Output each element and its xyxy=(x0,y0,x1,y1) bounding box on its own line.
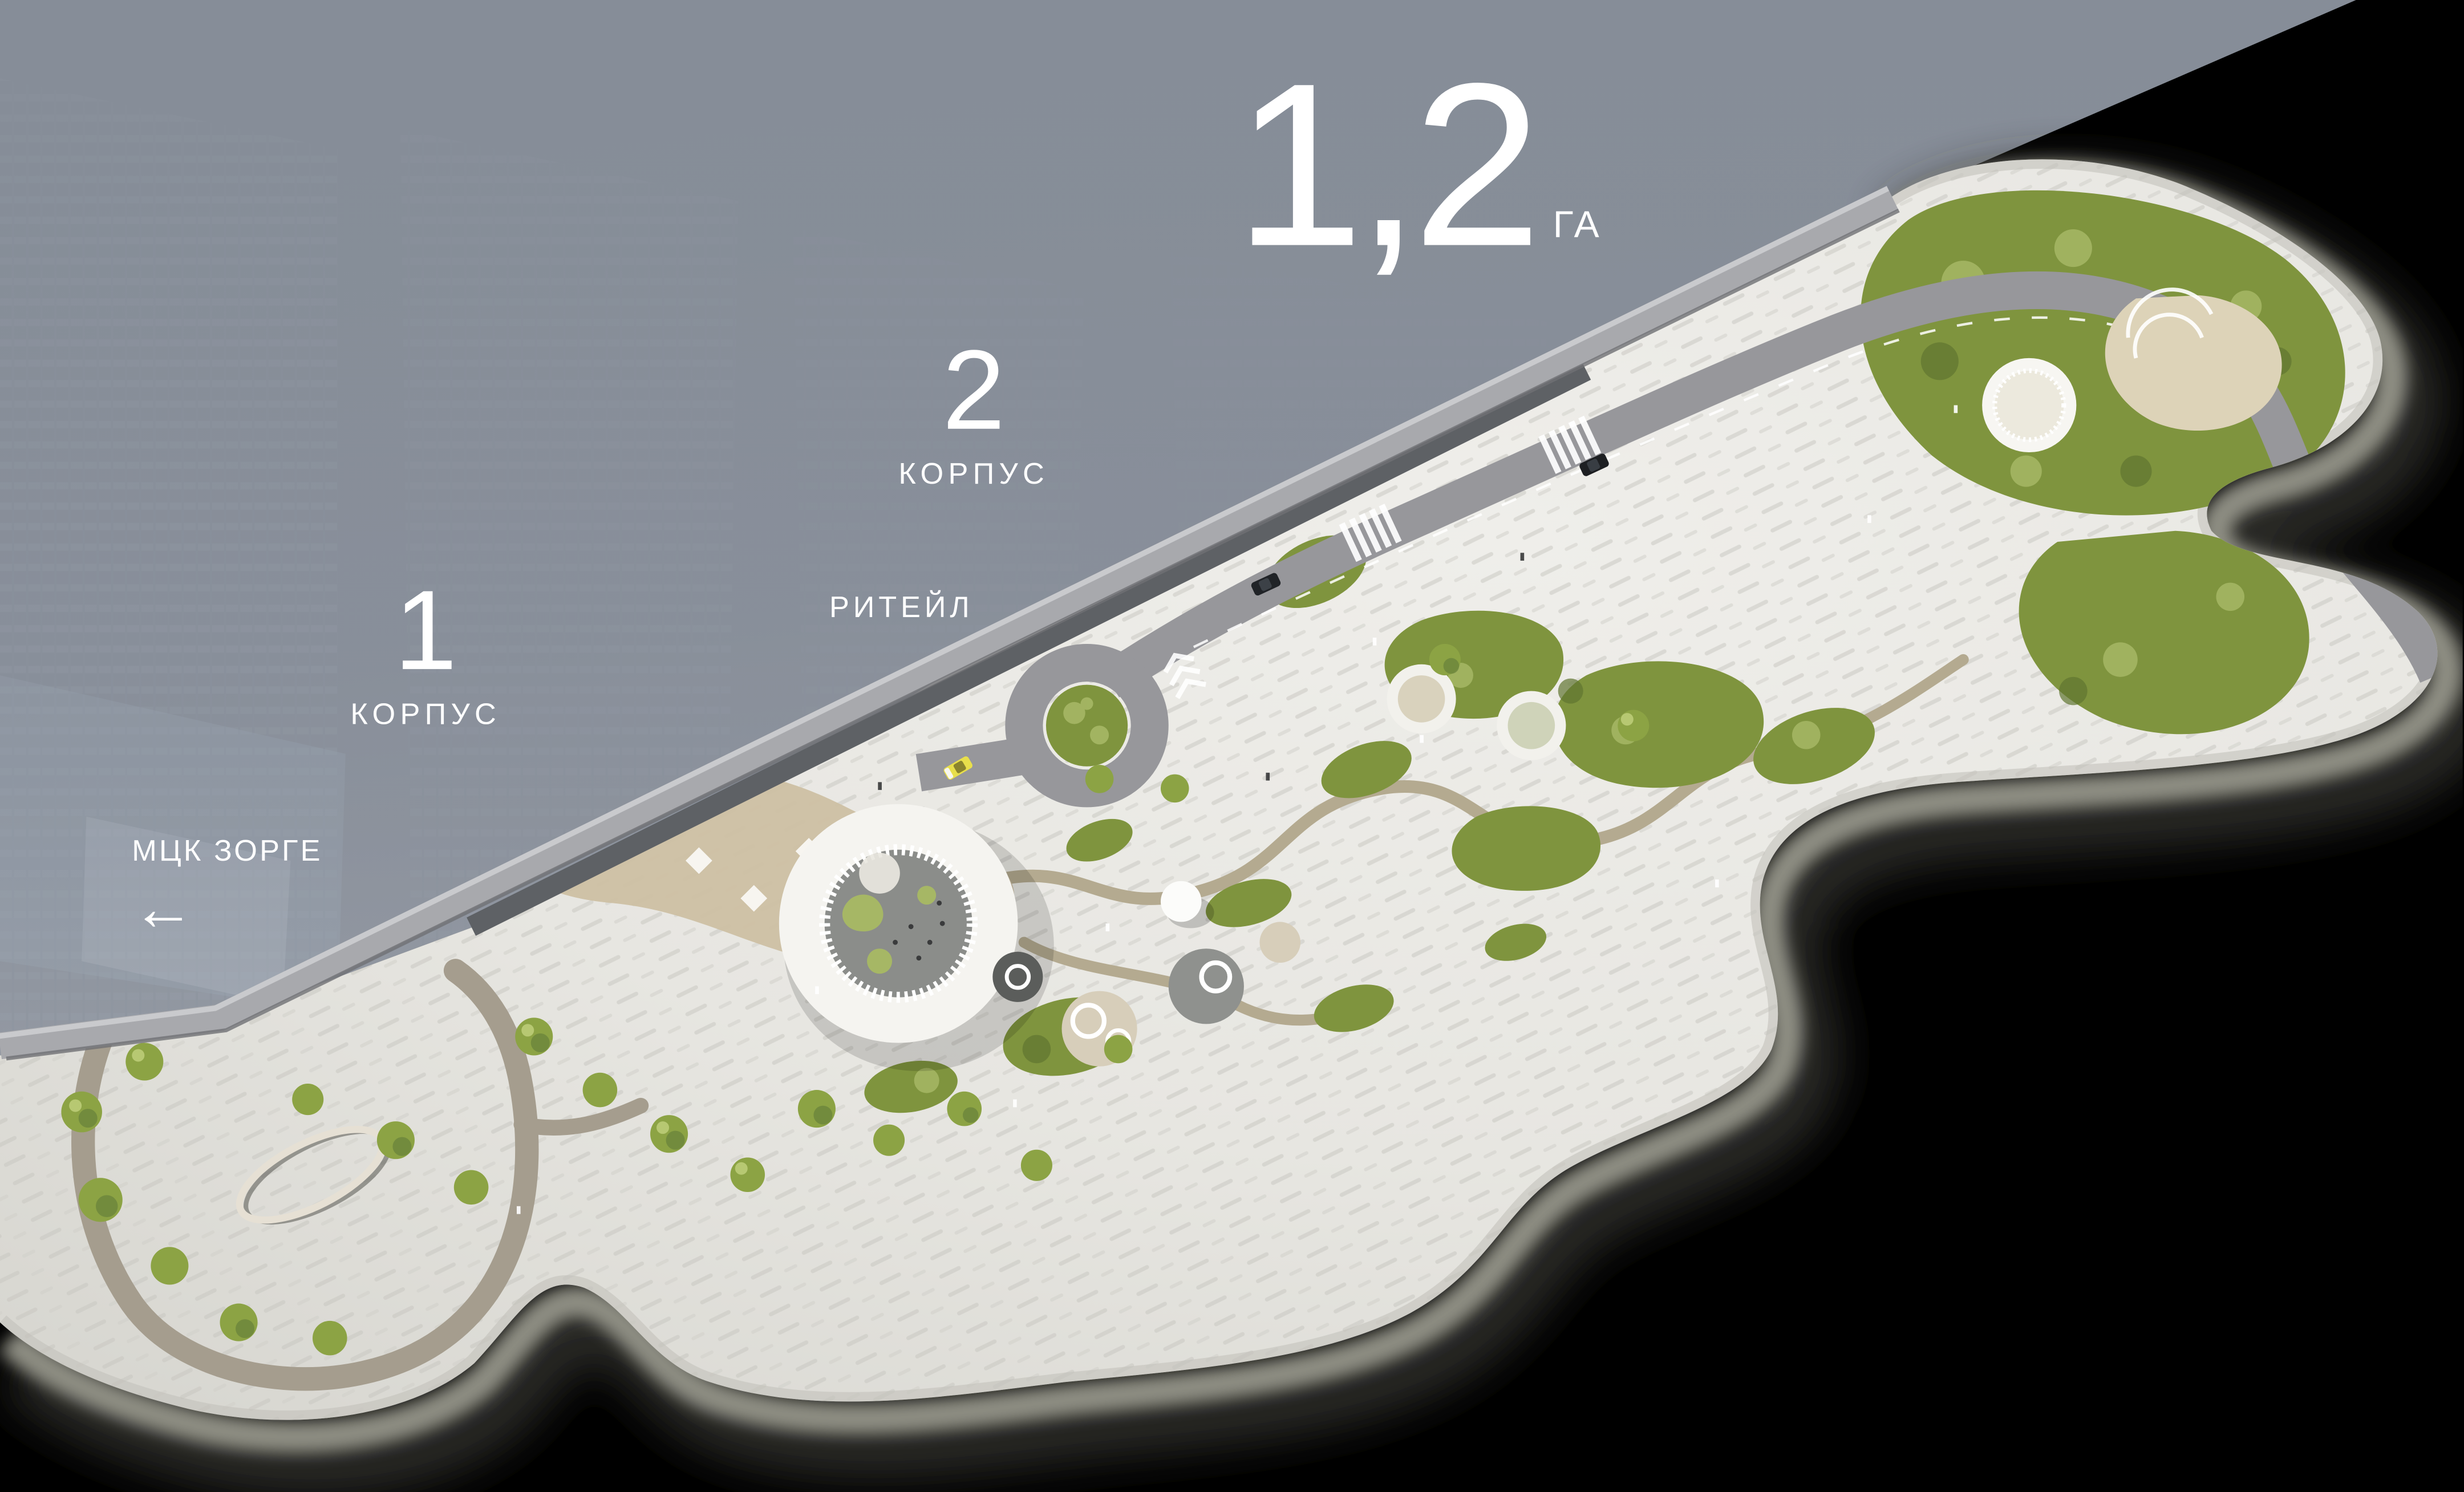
render-scene xyxy=(0,0,2463,1492)
building-2-number: 2 xyxy=(898,335,1049,448)
area-stat-value: 1,2 xyxy=(1234,60,1534,274)
area-stat-unit: ГА xyxy=(1553,204,1602,248)
building-1-label: КОРПУС xyxy=(350,699,501,733)
masterplan-stage: 1,2 ГА 2 КОРПУС 1 КОРПУС РИТЕЙЛ МЦК ЗОРГ… xyxy=(0,0,2463,1492)
building-1-number: 1 xyxy=(350,575,501,688)
hotspot-transit[interactable]: МЦК ЗОРГЕ ← xyxy=(132,836,322,933)
hotspot-building-1[interactable]: 1 КОРПУС xyxy=(350,575,501,733)
transit-label: МЦК ЗОРГЕ xyxy=(132,836,322,870)
hotspot-retail[interactable]: РИТЕЙЛ xyxy=(829,592,974,627)
roundabout-island xyxy=(1046,685,1128,767)
hotspot-building-2[interactable]: 2 КОРПУС xyxy=(898,335,1049,493)
area-stat: 1,2 ГА xyxy=(1234,60,1602,274)
building-2-label: КОРПУС xyxy=(898,459,1049,493)
arrow-left-icon[interactable]: ← xyxy=(132,886,322,933)
